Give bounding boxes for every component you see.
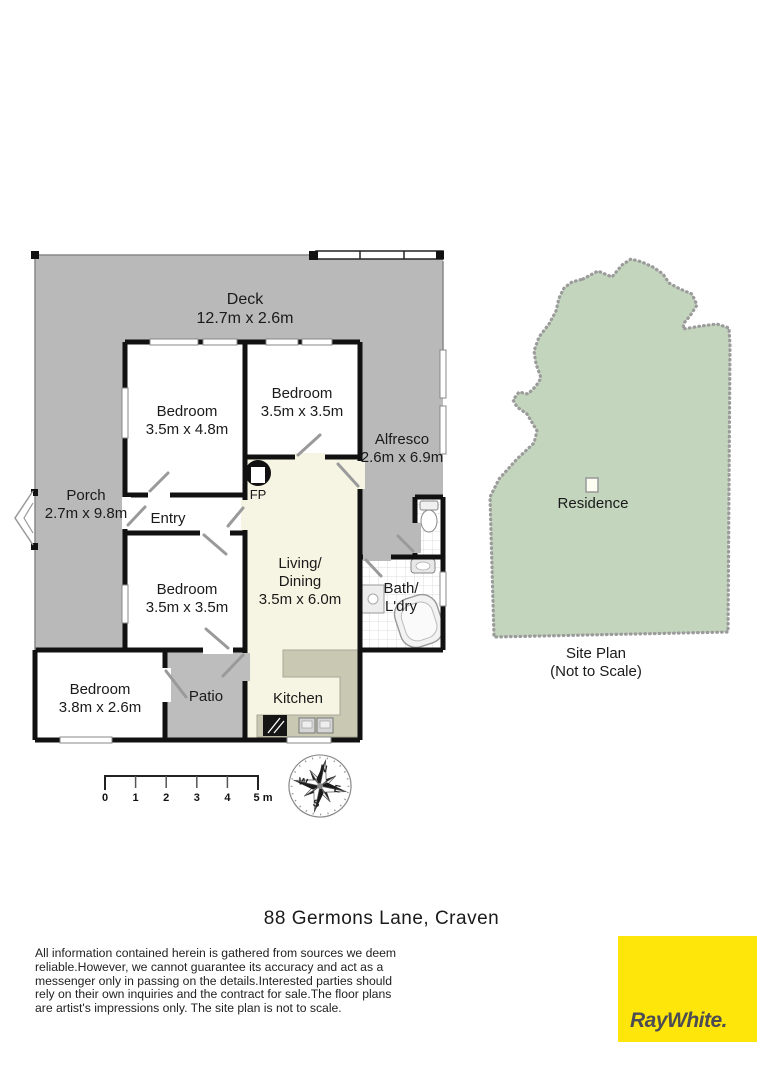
bath-label-1: Bath/ [383, 580, 419, 597]
alfresco-dims: 2.6m x 6.9m [361, 449, 444, 466]
bath-label-2: L'dry [385, 598, 418, 615]
toilet-icon [421, 510, 437, 532]
scale-tick-1: 1 [133, 792, 139, 804]
scale-tick-2: 2 [163, 792, 169, 804]
deck-dims: 12.7m x 2.6m [197, 310, 294, 327]
deck-post [31, 251, 39, 259]
residence-marker [586, 478, 598, 492]
disclaimer-line: are artist's impressions only. The site … [35, 1002, 475, 1016]
alfresco-label: Alfresco [375, 431, 429, 448]
bedroom-top-right-dims: 3.5m x 3.5m [261, 403, 344, 420]
bedroom-top-left-label: Bedroom [157, 403, 218, 420]
scale-bar: 0 1 2 3 4 5 m [102, 775, 273, 804]
kitchen-label: Kitchen [273, 690, 323, 707]
bedroom-middle-dims: 3.5m x 3.5m [146, 599, 229, 616]
bedroom-top-left-dims: 3.5m x 4.8m [146, 421, 229, 438]
living-label-1: Living/ [278, 555, 322, 572]
living-dims: 3.5m x 6.0m [259, 591, 342, 608]
bedroom-bottom-left-dims: 3.8m x 2.6m [59, 699, 142, 716]
compass-icon: N E S W [283, 749, 357, 823]
deck-post [436, 251, 444, 259]
disclaimer-line: All information contained herein is gath… [35, 947, 475, 961]
disclaimer-text: All information contained herein is gath… [35, 947, 475, 1016]
porch-dims: 2.7m x 9.8m [45, 505, 128, 522]
bedroom-top-right-label: Bedroom [272, 385, 333, 402]
sink-right-basin [320, 721, 330, 728]
residence-label: Residence [558, 495, 629, 512]
floorplan-drawing: Deck 12.7m x 2.6m Porch 2.7m x 9.8m Bedr… [0, 0, 763, 860]
property-address: 88 Germons Lane, Craven [0, 908, 763, 930]
floorplan-page: Deck 12.7m x 2.6m Porch 2.7m x 9.8m Bedr… [0, 0, 763, 1080]
site-boundary [490, 259, 730, 637]
deck-railing [316, 251, 443, 259]
laundry-sink-basin [416, 562, 430, 570]
living-label-2: Dining [279, 573, 322, 590]
patio-label: Patio [189, 688, 223, 705]
disclaimer-line: rely on their own inquiries and the cont… [35, 988, 475, 1002]
raywhite-logo: RayWhite. [618, 936, 757, 1042]
raywhite-logo-text: RayWhite. [630, 1009, 727, 1033]
fireplace-label: FP [250, 487, 267, 502]
vanity-basin [368, 594, 378, 604]
site-plan: Residence Site Plan (Not to Scale) [490, 259, 730, 680]
disclaimer-line: messenger only in passing on the details… [35, 975, 475, 989]
site-plan-caption-2: (Not to Scale) [550, 663, 642, 680]
deck-label: Deck [227, 291, 264, 308]
toilet-tank [420, 501, 438, 510]
disclaimer-line: reliable.However, we cannot guarantee it… [35, 961, 475, 975]
scale-tick-3: 3 [194, 792, 200, 804]
porch-label: Porch [66, 487, 105, 504]
site-plan-caption-1: Site Plan [566, 645, 626, 662]
sink-left-basin [302, 721, 312, 728]
stove-icon [263, 715, 287, 736]
scale-tick-5: 5 m [254, 792, 273, 804]
bedroom-middle-label: Bedroom [157, 581, 218, 598]
bedroom-bottom-left-label: Bedroom [70, 681, 131, 698]
scale-tick-4: 4 [224, 792, 231, 804]
fireplace-icon [245, 460, 271, 486]
scale-tick-0: 0 [102, 792, 108, 804]
deck-post [309, 251, 318, 260]
entry-label: Entry [150, 510, 186, 527]
